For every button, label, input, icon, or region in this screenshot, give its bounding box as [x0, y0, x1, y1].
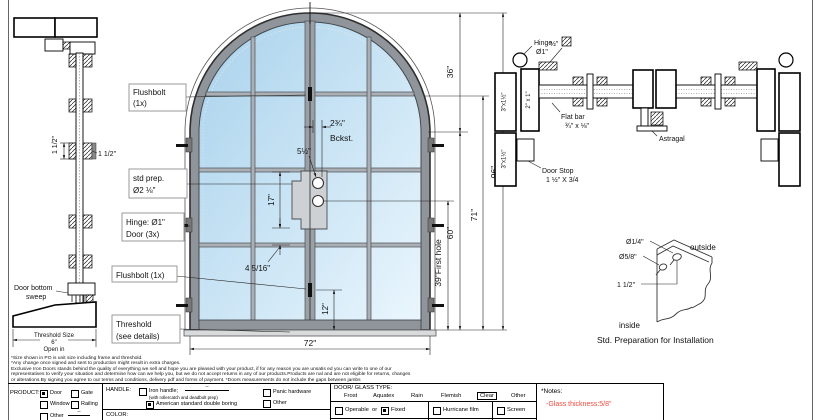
callout-std-prep-2: Ø2 ⅛" [133, 186, 156, 195]
handle-other-checkbox[interactable] [263, 400, 271, 408]
door-stop-left [517, 139, 534, 161]
dim-first-hole-39: 39"First hole [433, 239, 443, 287]
notes-label: *Notes: [541, 388, 562, 395]
glass-rain[interactable]: Rain [411, 393, 423, 399]
prep-inside-label: inside [619, 321, 640, 330]
callout-threshold-2: (see details) [116, 332, 160, 341]
product-door-checkbox[interactable] [40, 390, 48, 398]
dim-71: 71" [469, 209, 479, 221]
handle-american-checkbox[interactable] [146, 401, 154, 409]
product-gate-label: Gate [81, 390, 93, 396]
glass-hurricane-label: Hurricane film [443, 407, 479, 413]
handle-iron-blank[interactable]: -- [185, 385, 229, 391]
dim-spring-60: 60" [445, 227, 455, 239]
sweep-label-1: Door bottom [14, 285, 53, 292]
std-prep-detail: Ø1/4" Ø5/8" 1 1/2" outside inside Std. P… [597, 239, 716, 345]
glass-other[interactable]: Other [511, 393, 526, 399]
glass-divider-2 [331, 418, 536, 419]
plan-flat-bar-1: Flat bar [561, 114, 585, 121]
prep-dim-quarter: Ø1/4" [626, 239, 644, 246]
glass-flemish[interactable]: Flemish [441, 393, 461, 399]
handle-panic-label: Panic hardware [273, 389, 311, 395]
lock-hole-top [313, 178, 324, 189]
product-section: PRODUCT: Door Gate Window Railing Other … [8, 384, 103, 420]
handle-label: HANDLE: [106, 387, 131, 393]
flushbolt-bottom-mark [308, 283, 312, 297]
hinge-barrel-right [779, 53, 793, 67]
callout-std-prep-1: std prep. [133, 174, 164, 183]
glass-fixed-label: Fixed [391, 407, 405, 413]
dim-4-5-16: 4 5/16" [245, 264, 270, 273]
product-other-blank[interactable]: -- [68, 410, 90, 416]
product-window-checkbox[interactable] [40, 401, 48, 409]
handle-color-divider [103, 409, 330, 410]
shop-drawing-sheet: 1 1/2" 1 1/2" Door bottom sweep Threshol… [0, 0, 826, 420]
notes-glass-thickness: -Glass thickness:5/8" [546, 401, 612, 408]
callout-threshold-1: Threshold [116, 320, 152, 329]
lock-hole-bottom [313, 196, 324, 207]
prep-outside-label: outside [690, 243, 716, 252]
threshold-size-label: Threshold Size [34, 333, 75, 339]
plan-stile-label: 2" x 1" [526, 91, 532, 108]
dim-arch-36: 36" [445, 66, 455, 78]
product-other-checkbox[interactable] [40, 413, 48, 420]
prep-hole-fiveeighths [658, 263, 667, 271]
handle-iron-note: (with rollercatch and deadbolt prep) [149, 395, 218, 400]
notes-section: *Notes: -Glass thickness:5/8" [537, 384, 664, 420]
callout-flushbolt-top-1: Flushbolt [133, 88, 166, 97]
handle-american-label: American standard double boring [156, 401, 237, 407]
prep-dim-fiveeighths: Ø5/8" [619, 254, 637, 261]
glass-fixed-checkbox[interactable] [381, 407, 389, 415]
threshold-ramp [13, 302, 96, 327]
dim-backset-word: Bckst. [330, 133, 353, 143]
glass-screen-checkbox[interactable] [497, 407, 505, 415]
jamb-section-detail: 1 1/2" 1 1/2" Door bottom sweep Threshol… [13, 18, 117, 353]
product-railing-checkbox[interactable] [71, 401, 79, 409]
dim-12: 12" [321, 303, 330, 315]
dim-17: 17" [267, 194, 276, 206]
glass-frost[interactable]: Frost [344, 393, 357, 399]
plan-jamb-bottom-label: 3"x1½" [501, 150, 508, 169]
glass-or-label: or [372, 407, 377, 413]
handle-iron-checkbox[interactable] [139, 388, 147, 396]
glass-clear-selected[interactable]: Clear [477, 392, 497, 400]
glass-divider-1 [331, 401, 536, 402]
dim-jamb-horizontal: 1 1/2" [98, 151, 117, 158]
callout-hinge-1: Hinge: Ø1" [126, 218, 165, 227]
prep-dim-offset: 1 1/2" [617, 282, 636, 289]
glass-aquatex[interactable]: Aquatex [373, 393, 394, 399]
glass-operable-label: Operable [345, 407, 369, 413]
order-form: PRODUCT: Door Gate Window Railing Other … [8, 383, 664, 420]
dim-backset: 2¾" [330, 118, 345, 128]
glass-hurricane-checkbox[interactable] [433, 407, 441, 415]
plan-flat-bar-2: ¾" x ⅛" [565, 123, 590, 130]
plan-jamb-top-label: 3"x1½" [501, 93, 508, 112]
plan-hinge-label-2: Ø1" [536, 49, 548, 56]
door-elevation [176, 2, 444, 336]
door-sill [184, 330, 436, 336]
glass-operable-checkbox[interactable] [335, 407, 343, 415]
callout-flushbolt-top-2: (1x) [133, 99, 147, 108]
plan-square-bar-label: ½" [550, 40, 559, 48]
product-railing-label: Railing [81, 401, 98, 407]
product-other-label: Other [50, 413, 64, 419]
prep-caption: Std. Preparation for Installation [597, 335, 714, 345]
glass-type-label: DOOR/ GLASS TYPE: [334, 385, 392, 391]
dim-5-half: 5½" [297, 147, 311, 156]
glass-type-section: DOOR/ GLASS TYPE: Frost Aquatex Rain Fle… [331, 384, 537, 420]
product-door-label: Door [50, 390, 62, 396]
flushbolt-top-mark [308, 87, 312, 101]
square-bar-icon [562, 37, 571, 46]
sweep-label-2: sweep [26, 294, 46, 301]
handle-section: HANDLE: Iron handle; -- (with rollercatc… [103, 384, 331, 420]
plan-door-stop-1: Door Stop [542, 168, 574, 175]
dim-width-72: 72" [304, 338, 316, 348]
glass-screen-label: Screen [507, 407, 525, 413]
door-stop-right [761, 139, 778, 161]
threshold-open-in: Open in [43, 347, 64, 353]
callout-hinge-2: Door (3x) [126, 230, 160, 239]
plan-astragal-label: Astragal [659, 136, 685, 143]
callout-flushbolt-bottom: Flushbolt (1x) [116, 271, 165, 280]
disclaimer-text: *Size shown in PO is unit size including… [11, 356, 611, 383]
hinge-barrel [513, 53, 527, 67]
handle-other-label: Other [273, 400, 287, 406]
color-label: COLOR: [106, 412, 128, 418]
plan-section-detail: 3"x1½" 3"x1½" 2" x 1" Hinge Ø1" ½" Door … [495, 37, 800, 186]
plan-door-stop-2: 1 ½" X 3/4 [546, 176, 579, 184]
product-gate-checkbox[interactable] [71, 390, 79, 398]
handle-panic-checkbox[interactable] [263, 389, 271, 397]
handle-iron-label: Iron handle; [149, 388, 178, 394]
threshold-size-value: 6" [51, 340, 56, 346]
product-label: PRODUCT: [10, 390, 40, 396]
product-window-label: Window [50, 401, 70, 407]
dim-jamb-vertical: 1 1/2" [52, 135, 59, 154]
